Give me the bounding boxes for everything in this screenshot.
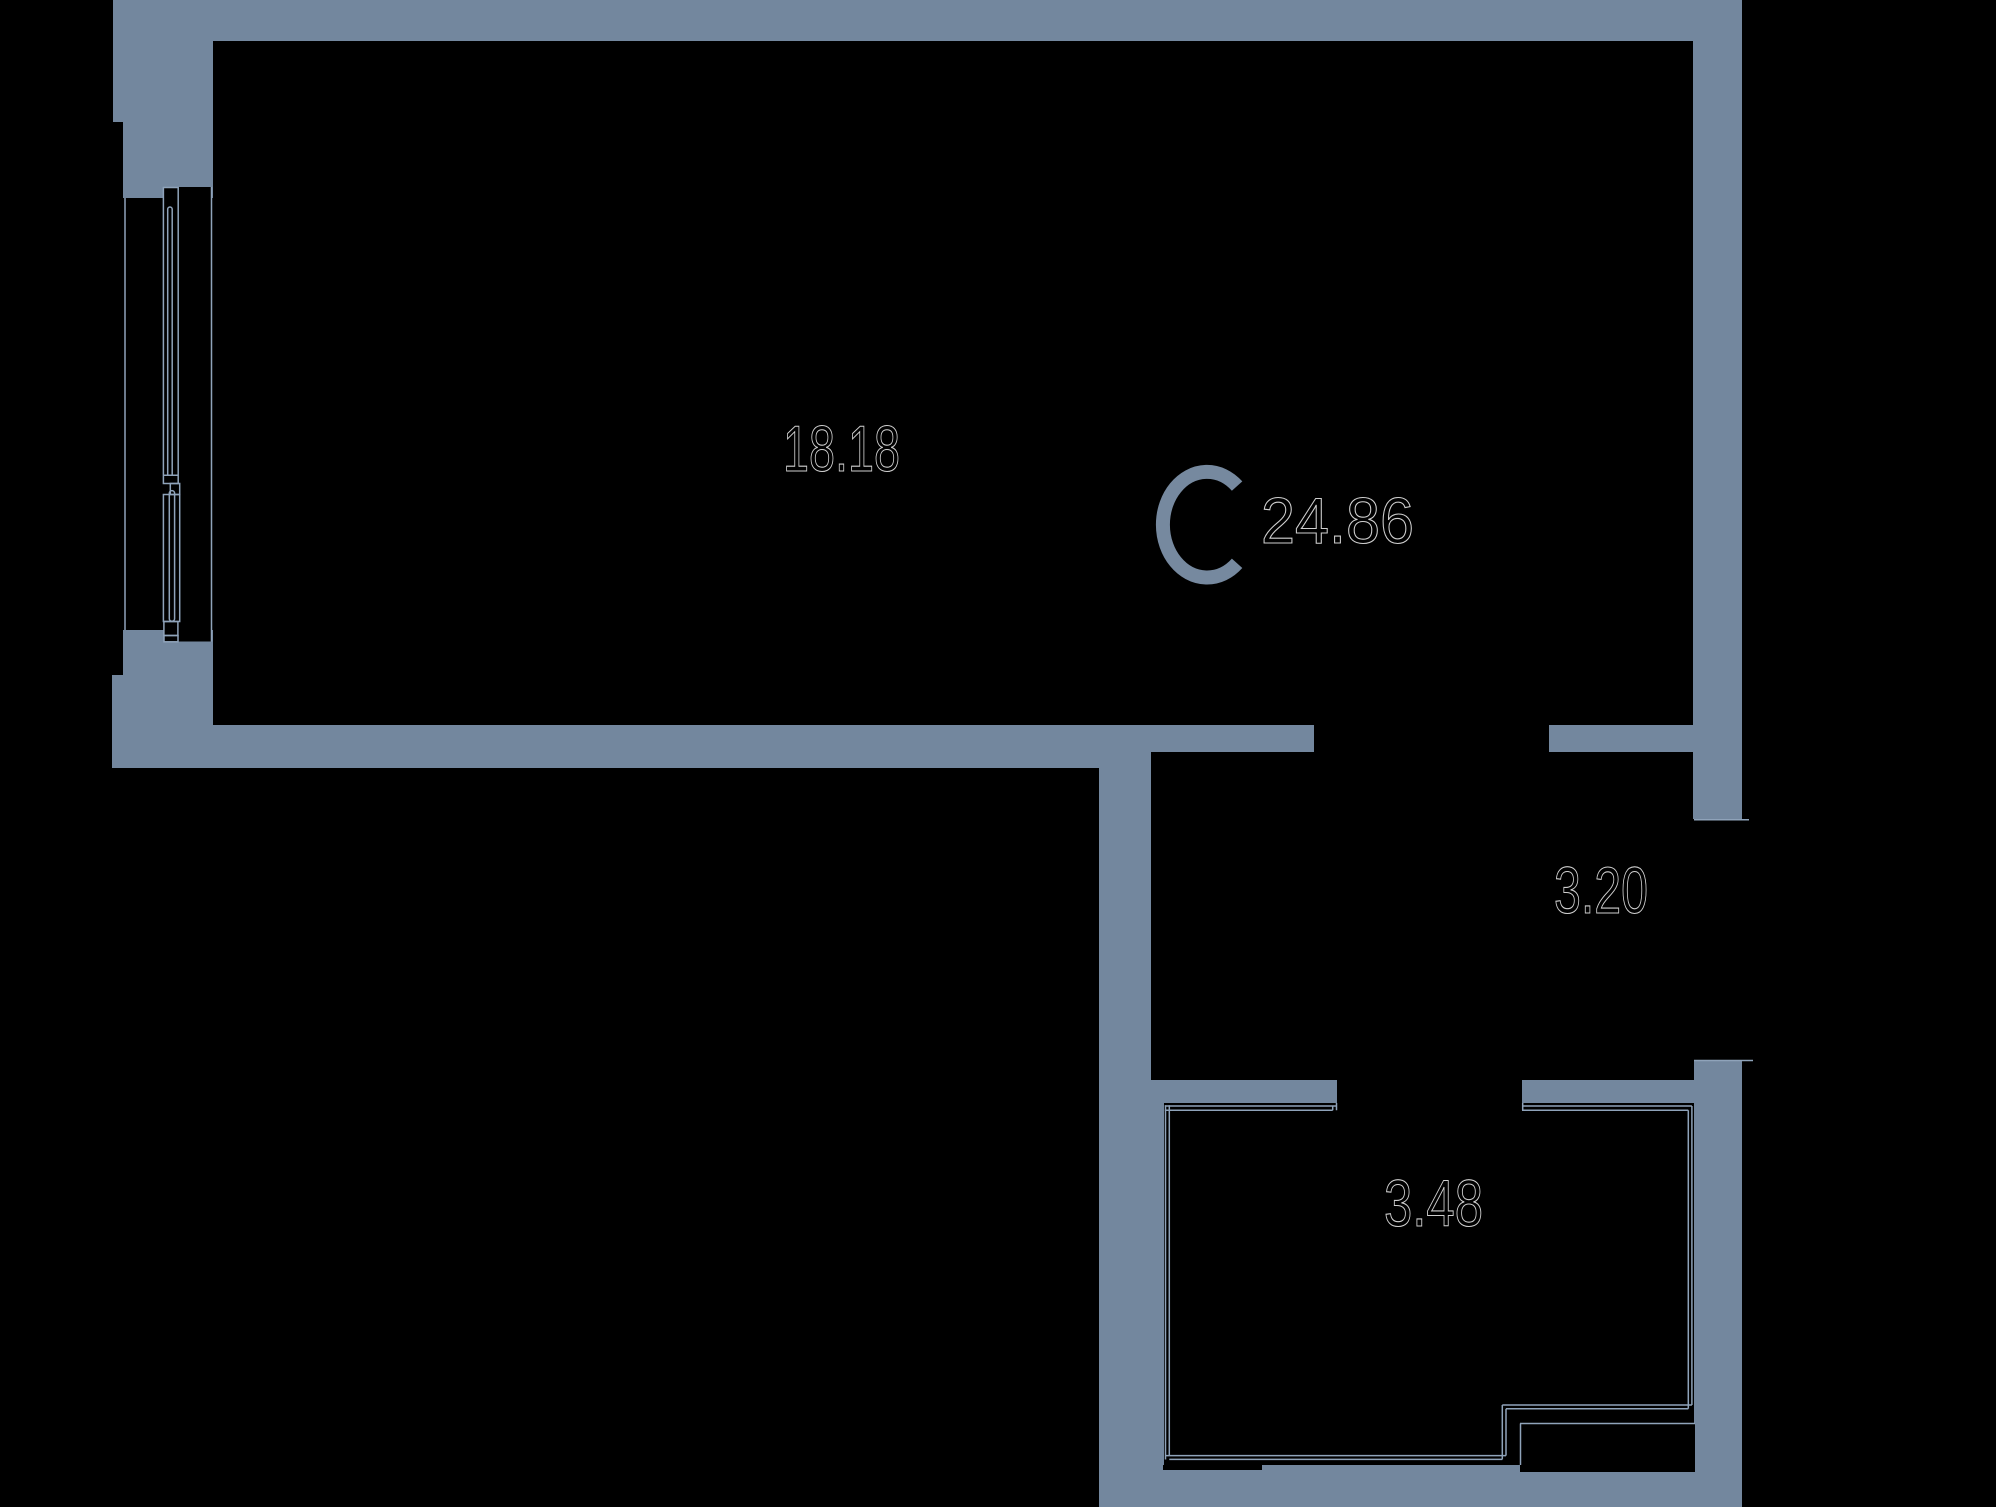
- svg-text:3.20: 3.20: [1554, 853, 1648, 927]
- svg-text:18.18: 18.18: [783, 413, 900, 485]
- svg-text:3.48: 3.48: [1384, 1166, 1483, 1240]
- svg-text:24.86: 24.86: [1261, 485, 1414, 557]
